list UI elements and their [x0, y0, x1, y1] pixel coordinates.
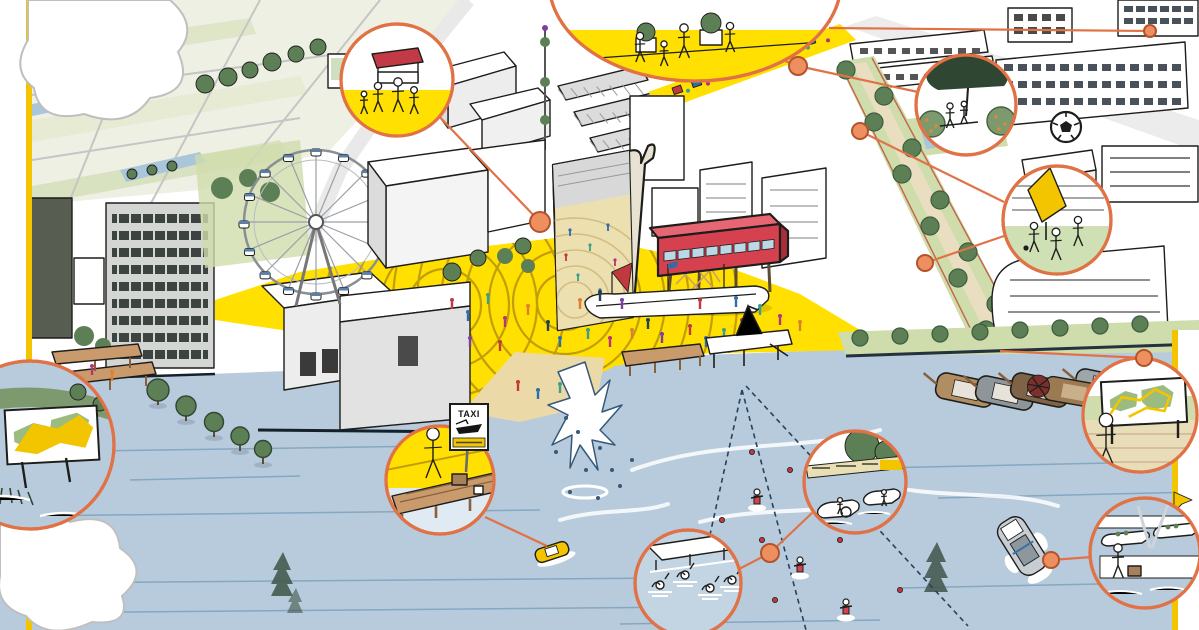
soccer-ball-icon: [1051, 112, 1081, 142]
suitcase: [452, 474, 467, 485]
callout-picnic-orchard: [916, 55, 1016, 155]
callout-ferry-terminal: [1090, 498, 1199, 608]
taxi-sign-label: TAXI: [458, 409, 480, 419]
callout-pedal-boats: [804, 429, 906, 533]
masterplan-illustration: TAXI: [0, 0, 1199, 630]
